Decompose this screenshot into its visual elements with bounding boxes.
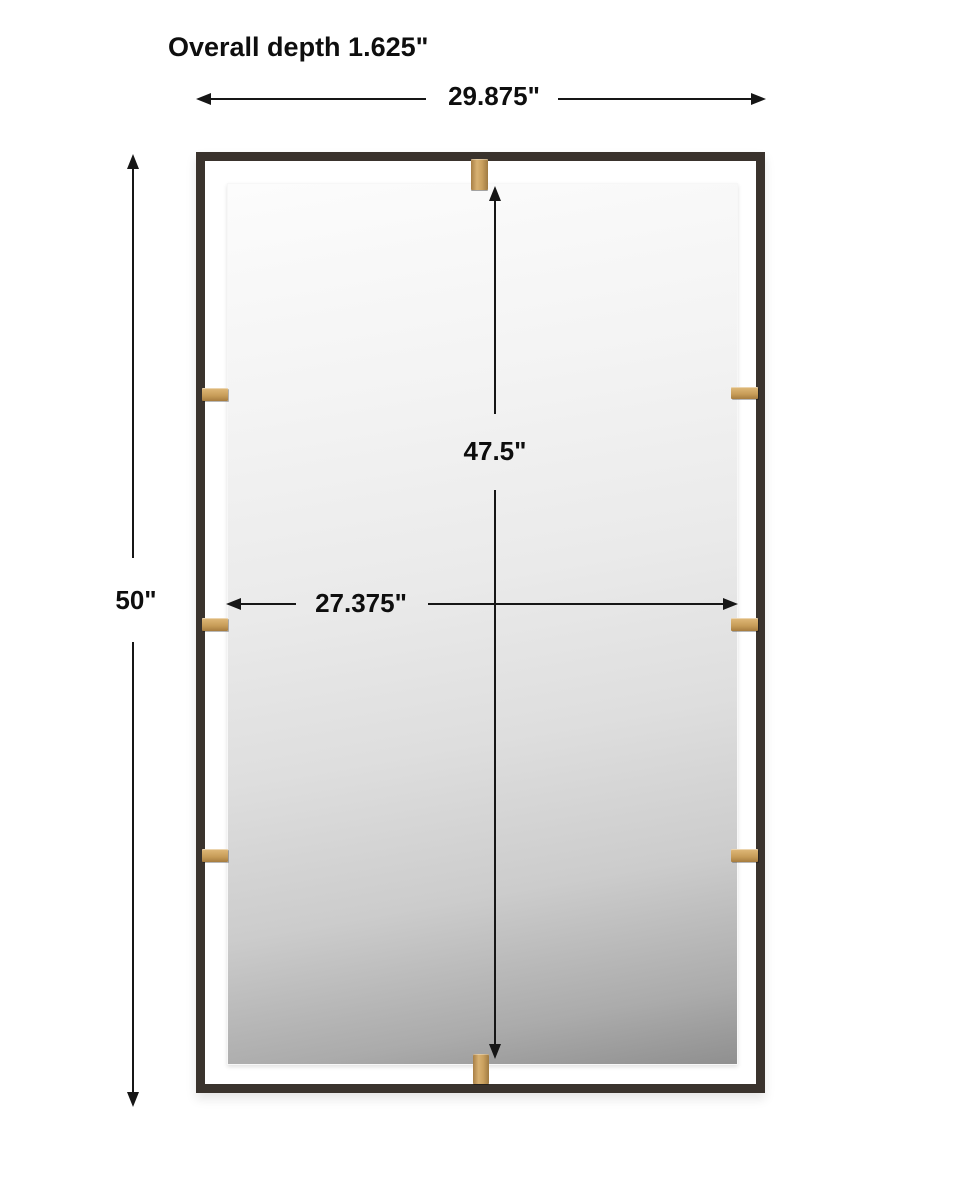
arrow-right-icon bbox=[723, 598, 738, 610]
brass-clip-top-center bbox=[471, 159, 488, 190]
product-dimension-diagram: Overall depth 1.625" 29.875" 50" 47.5" 2… bbox=[0, 0, 959, 1200]
dimension-line bbox=[240, 603, 296, 605]
arrow-left-icon bbox=[196, 93, 211, 105]
mirror-glass bbox=[227, 183, 738, 1065]
dimension-line bbox=[132, 168, 134, 558]
arrow-down-icon bbox=[127, 1092, 139, 1107]
dimension-line bbox=[210, 98, 426, 100]
arrow-right-icon bbox=[751, 93, 766, 105]
dimension-line bbox=[132, 642, 134, 1092]
brass-clip-right-bottom bbox=[731, 849, 758, 862]
height-dimension-label: 50" bbox=[76, 586, 196, 615]
mirror-width-label: 27.375" bbox=[296, 589, 426, 618]
arrow-up-icon bbox=[489, 186, 501, 201]
brass-clip-right-middle bbox=[731, 618, 758, 631]
brass-clip-bottom-center bbox=[473, 1054, 489, 1084]
dimension-line bbox=[494, 200, 496, 414]
dimension-line bbox=[558, 98, 752, 100]
brass-clip-left-middle bbox=[202, 618, 228, 631]
dimension-line bbox=[494, 490, 496, 1044]
arrow-up-icon bbox=[127, 154, 139, 169]
overall-depth-label: Overall depth 1.625" bbox=[168, 32, 428, 63]
brass-clip-left-bottom bbox=[202, 849, 228, 862]
dimension-line bbox=[428, 603, 724, 605]
mirror-height-label: 47.5" bbox=[435, 437, 555, 466]
arrow-down-icon bbox=[489, 1044, 501, 1059]
brass-clip-left-top bbox=[202, 388, 228, 401]
arrow-left-icon bbox=[226, 598, 241, 610]
width-dimension-label: 29.875" bbox=[432, 82, 556, 111]
brass-clip-right-top bbox=[731, 387, 758, 399]
